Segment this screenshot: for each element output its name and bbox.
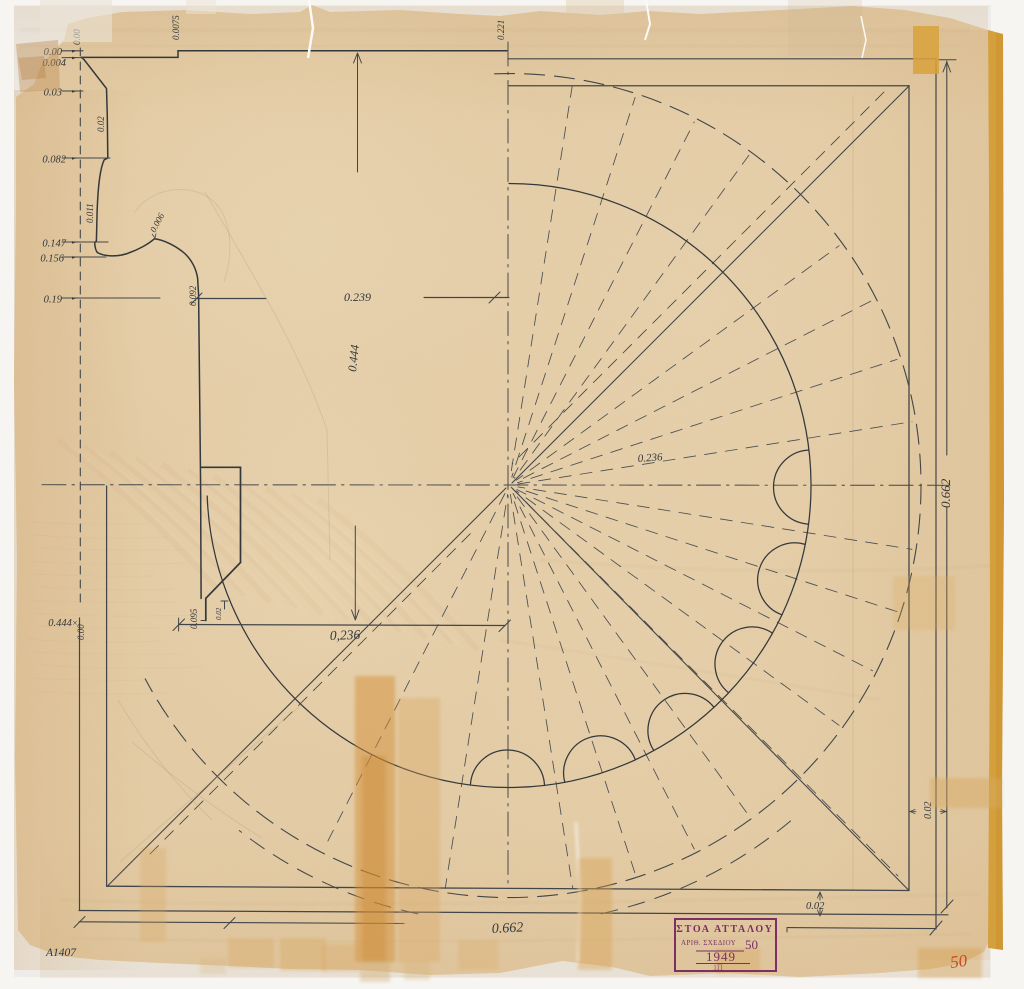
svg-text:0.0075: 0.0075 xyxy=(171,15,181,40)
svg-text:0.02: 0.02 xyxy=(806,901,825,912)
svg-text:0.662: 0.662 xyxy=(491,920,523,937)
svg-text:0.147: 0.147 xyxy=(42,239,66,250)
svg-text:0.19: 0.19 xyxy=(44,295,63,306)
svg-text:0.236: 0.236 xyxy=(637,451,663,465)
svg-text:0.092: 0.092 xyxy=(188,285,198,306)
svg-text:0.444: 0.444 xyxy=(345,344,362,372)
svg-text:50: 50 xyxy=(745,937,758,952)
svg-text:50: 50 xyxy=(949,951,969,972)
svg-text:0.221: 0.221 xyxy=(496,20,506,40)
svg-text:0.02: 0.02 xyxy=(215,607,223,620)
svg-text:1Π: 1Π xyxy=(713,963,723,972)
svg-text:0.239: 0.239 xyxy=(344,290,371,304)
svg-text:A1407: A1407 xyxy=(45,947,77,959)
svg-text:ΣΤΟΑ ΑΤΤΑΛΟΥ: ΣΤΟΑ ΑΤΤΑΛΟΥ xyxy=(676,924,773,935)
svg-text:0.095: 0.095 xyxy=(189,608,199,629)
svg-text:ΑΡΙΘ. ΣΧΕΔΙΟΥ: ΑΡΙΘ. ΣΧΕΔΙΟΥ xyxy=(681,939,736,947)
svg-text:1949: 1949 xyxy=(706,949,736,964)
svg-text:0,236: 0,236 xyxy=(330,627,361,643)
svg-text:0.02: 0.02 xyxy=(96,116,106,132)
svg-text:0.156: 0.156 xyxy=(40,254,64,265)
svg-text:0.444×: 0.444× xyxy=(48,618,78,629)
svg-text:0.011: 0.011 xyxy=(85,203,95,223)
svg-text:0.662: 0.662 xyxy=(938,478,953,508)
svg-text:0.082: 0.082 xyxy=(42,155,66,166)
svg-text:0.00: 0.00 xyxy=(76,624,86,640)
